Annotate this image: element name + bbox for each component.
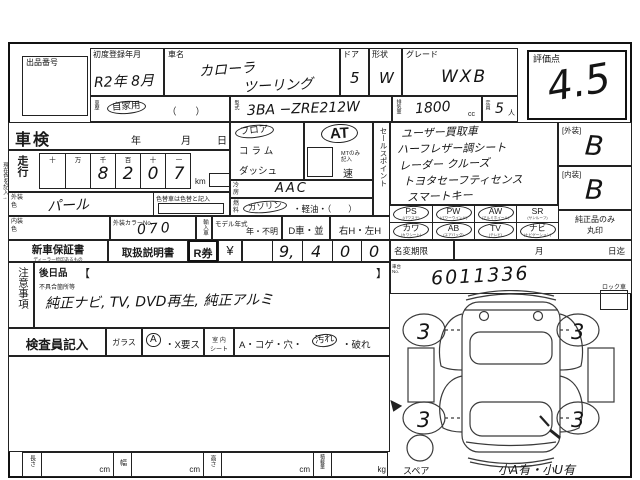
sales-point-label: セールスポイント bbox=[378, 127, 389, 187]
glass-label-box: ガラス bbox=[106, 328, 142, 356]
sales-point-item: スマートキー bbox=[407, 187, 473, 205]
dimensions-strip: 長さ cm 幅 cm 高さ cm 積載量 kg bbox=[22, 452, 388, 477]
month-label: 月 bbox=[535, 245, 544, 257]
name-change-box: 名変期限 bbox=[390, 240, 454, 260]
notes-label: 注意事項 bbox=[16, 267, 31, 309]
recycle-amount-digit: 0 bbox=[369, 242, 379, 261]
equipment-cell-navi: ナビ (ナビゲーション) bbox=[516, 222, 558, 240]
name-change-label: 名変期限 bbox=[394, 245, 453, 257]
sales-point-item: レーダー クルーズ bbox=[399, 154, 490, 173]
auction-sheet: 現在色を記入→ 出品番号 初度登録年月 R2年 8月 車名 カローラ ツーリング… bbox=[0, 0, 640, 480]
recycle-ticket-label: R券 bbox=[190, 245, 216, 261]
front-glass bbox=[470, 332, 552, 364]
exterior-color-box: 外装色 パール 色替車は色替と記入 bbox=[8, 192, 230, 216]
d-car-box: D車・並 bbox=[282, 216, 330, 240]
grade-box: グレード WXB bbox=[402, 48, 518, 96]
spare-label: スペア bbox=[403, 466, 429, 476]
door-value: 5 bbox=[350, 69, 360, 87]
bracket-close: 】 bbox=[376, 265, 387, 281]
model-year-value: 年・不明 bbox=[246, 226, 278, 237]
shift-column: コラム bbox=[239, 143, 276, 157]
fuel-gasoline: ガソリン bbox=[243, 199, 288, 215]
seat-label-box: 室 内 シート bbox=[204, 328, 234, 356]
damage-mark-right bbox=[550, 430, 560, 438]
handle-label: 右H・左H bbox=[331, 223, 389, 237]
score-value: 4.5 bbox=[543, 55, 614, 111]
model-code-box: 型式 3BA −ZRE212W bbox=[230, 96, 392, 122]
height-label: 高さ bbox=[208, 455, 217, 467]
recycle-amount-box: 9, 4 0 0 bbox=[242, 240, 390, 262]
capacity-unit: 人 bbox=[508, 108, 515, 118]
sales-point-item: ハーフレザー調シート bbox=[397, 139, 507, 157]
shift-position-box: フロア コラム ダッシュ bbox=[230, 122, 304, 180]
inspector-label-box: 検査員記入 bbox=[8, 328, 106, 356]
equipment-cell-aw: AW (アルミホイール) bbox=[474, 205, 516, 222]
auction-number-box: 出品番号 bbox=[22, 56, 88, 116]
trunk-line bbox=[466, 442, 556, 446]
mileage-digit: 8 bbox=[91, 164, 115, 184]
height-unit: cm bbox=[299, 465, 310, 474]
ac-box: 冷房 AAC bbox=[230, 180, 373, 198]
damage-mark-right bbox=[540, 416, 549, 426]
first-registration-label: 初度登録年月 bbox=[91, 49, 163, 62]
mt-note-2: 記入 bbox=[341, 155, 352, 163]
tire-mark: 3 bbox=[417, 320, 430, 344]
genuine-note-1: 純正品のみ bbox=[559, 214, 631, 225]
grade-value: WXB bbox=[441, 67, 487, 87]
yen-label: ¥ bbox=[219, 243, 241, 258]
capacity-label: 定員 bbox=[484, 100, 490, 110]
sales-point-item: ユーザー買取車 bbox=[401, 123, 478, 142]
defect-value: 純正ナビ, TV, DVD再生, 純正アルミ bbox=[45, 289, 274, 313]
damage-mark-left bbox=[392, 402, 400, 410]
interior-color-label: 内装色 bbox=[11, 219, 25, 234]
glass-label: ガラス bbox=[107, 337, 141, 348]
door-box: ドア 5 bbox=[340, 48, 369, 96]
mileage-col: 十 bbox=[40, 154, 65, 164]
tire-mark: 3 bbox=[571, 408, 584, 432]
mileage-digit: 7 bbox=[166, 164, 192, 184]
front-bumper-line bbox=[468, 291, 554, 297]
load-label: 積載量 bbox=[319, 454, 326, 469]
equipment-cell-kawa: カワ (カワシート) bbox=[390, 222, 432, 240]
day-until-label: 日迄 bbox=[608, 245, 625, 257]
sales-point-label-box: セールスポイント bbox=[373, 122, 390, 216]
mileage-col: 万 bbox=[66, 154, 90, 164]
inspector-label: 検査員記入 bbox=[9, 334, 105, 353]
car-damage-diagram: 3 3 3 3 スペア 小A有・小U有 bbox=[390, 290, 632, 478]
spare-tire-circle bbox=[407, 435, 433, 461]
equipment-code: SR bbox=[517, 207, 558, 216]
equipment-cell-sr: SR (サンルーフ) bbox=[516, 205, 558, 222]
glass-value-box: A ・X要ス bbox=[142, 328, 204, 356]
chassis-label-2: No. bbox=[392, 269, 401, 274]
history-box: 車歴 自家用 （ ） bbox=[90, 96, 230, 122]
exterior-grade-box: [外装] B bbox=[558, 122, 632, 166]
fuel-label: 燃料 bbox=[233, 201, 241, 215]
color-no-box: 外装カラーNo. 070 bbox=[110, 216, 196, 240]
sales-points-box: ユーザー買取車 ハーフレザー調シート レーダー クルーズ トヨタセーフティセンス… bbox=[390, 122, 558, 205]
displacement-label: 排気量 bbox=[395, 99, 401, 114]
shape-label: 形状 bbox=[370, 49, 401, 62]
ac-label: 冷房 bbox=[233, 183, 241, 197]
history-value: 自家用 bbox=[107, 100, 146, 116]
equipment-cell-ps: PS (パワステ) bbox=[390, 205, 432, 222]
name-change-date-box: 月 日迄 bbox=[454, 240, 632, 260]
mileage-label: 走行 bbox=[14, 155, 30, 177]
equipment-cell-tv: TV (テレビ) bbox=[474, 222, 516, 240]
car-name-line2: ツーリング bbox=[243, 73, 314, 97]
manual-box: 取扱説明書 bbox=[108, 240, 188, 262]
tire-mark: 3 bbox=[571, 320, 584, 344]
shaken-day: 日 bbox=[217, 132, 227, 147]
exterior-color-label: 外装色 bbox=[11, 195, 25, 210]
color-change-input bbox=[158, 203, 224, 214]
wiper-dot bbox=[480, 312, 489, 321]
fuel-box: 燃料 ガソリン ・軽油・（ ） bbox=[230, 198, 373, 216]
displacement-box: 排気量 1800 cc bbox=[392, 96, 482, 122]
recycle-amount-digit: 0 bbox=[340, 242, 350, 261]
load-unit: kg bbox=[378, 465, 386, 474]
mileage-digit: 0 bbox=[141, 164, 165, 184]
transmission-box: AT MTのみ 記入 速 bbox=[304, 122, 373, 180]
seat-post: ・破れ bbox=[342, 337, 371, 351]
speed-label: 速 bbox=[343, 165, 353, 180]
fuel-rest: ・軽油・（ ） bbox=[293, 203, 357, 215]
d-car-label: D車・並 bbox=[283, 223, 329, 237]
model-year-box: モデル年式 年・不明 bbox=[212, 216, 282, 240]
rear-glass bbox=[470, 402, 552, 436]
bracket-open: 【 bbox=[79, 265, 90, 281]
tire-mark: 3 bbox=[417, 408, 430, 432]
genuine-parts-box: 純正品のみ 丸印 bbox=[558, 210, 632, 240]
car-body-outline bbox=[462, 302, 560, 452]
interior-color-box: 内装色 bbox=[8, 216, 110, 240]
warranty-label: 新車保証書 bbox=[9, 242, 107, 257]
shaken-box: 車検 年 月 日 bbox=[8, 122, 230, 150]
diagram-bottom-note: 小A有・小U有 bbox=[498, 463, 577, 477]
later-items-label: 後日品 bbox=[39, 265, 68, 279]
displacement-unit: cc bbox=[468, 111, 475, 118]
exterior-color-value: パール bbox=[47, 194, 90, 216]
wiper-dot bbox=[534, 312, 543, 321]
defect-label: 不具合箇所等 bbox=[39, 282, 75, 291]
notes-box: 後日品 【 】 不具合箇所等 純正ナビ, TV, DVD再生, 純正アルミ bbox=[34, 262, 390, 328]
history-label: 車歴 bbox=[93, 100, 99, 110]
grade-label: グレード bbox=[403, 49, 517, 62]
interior-grade-box: [内装] B bbox=[558, 166, 632, 210]
interior-grade-value: B bbox=[584, 175, 604, 207]
recycle-ticket-box: R券 bbox=[188, 240, 218, 262]
history-paren: （ ） bbox=[167, 104, 205, 118]
warranty-box: 新車保証書 ディーラー捺印あるもの bbox=[8, 240, 108, 262]
km-label: km bbox=[195, 177, 206, 186]
at-value: AT bbox=[321, 123, 359, 144]
sill-right bbox=[588, 348, 614, 402]
auction-number-label: 出品番号 bbox=[23, 57, 87, 70]
model-code-label: 型式 bbox=[233, 100, 239, 110]
seat-value-box: A・コゲ・穴・ 汚れ ・破れ bbox=[234, 328, 390, 356]
mileage-box: 走行 十 万 千8 百2 十0 一7 km bbox=[8, 150, 230, 192]
seat-label-2: シート bbox=[205, 344, 233, 353]
seat-label-1: 室 内 bbox=[205, 335, 233, 344]
genuine-note-2: 丸印 bbox=[559, 225, 631, 236]
capacity-box: 定員 5 人 bbox=[482, 96, 518, 122]
length-unit: cm bbox=[99, 465, 110, 474]
length-label: 長さ bbox=[28, 455, 37, 467]
car-name-box: 車名 カローラ ツーリング bbox=[164, 48, 340, 96]
mileage-col: 一 bbox=[166, 154, 192, 164]
width-unit: cm bbox=[189, 465, 200, 474]
shaken-month: 月 bbox=[181, 132, 191, 147]
recycle-amount-digit: 9, bbox=[279, 242, 294, 261]
yen-box: ¥ bbox=[218, 240, 242, 262]
first-registration-value: R2年 8月 bbox=[94, 70, 155, 92]
first-registration-box: 初度登録年月 R2年 8月 bbox=[90, 48, 164, 96]
shape-value: W bbox=[379, 69, 394, 87]
shape-box: 形状 W bbox=[369, 48, 402, 96]
shift-floor: フロア bbox=[234, 123, 274, 140]
mileage-col: 千 bbox=[91, 154, 115, 164]
gear-count-box bbox=[307, 147, 333, 177]
shaken-year: 年 bbox=[131, 132, 141, 147]
exterior-grade-value: B bbox=[584, 130, 605, 162]
displacement-value: 1800 bbox=[414, 99, 451, 117]
ac-value: AAC bbox=[275, 181, 308, 196]
model-code-value: 3BA −ZRE212W bbox=[247, 99, 360, 119]
color-no-value: 070 bbox=[136, 220, 173, 238]
equipment-grid: PS (パワステ) PW (パワーウインド) AW (アルミホイール) SR (… bbox=[390, 205, 558, 240]
sill-left bbox=[408, 348, 434, 402]
seat-dirty: 汚れ bbox=[311, 333, 337, 348]
shift-dash: ダッシュ bbox=[239, 163, 277, 177]
glass-grade: A bbox=[146, 333, 161, 347]
front-bumper-line bbox=[466, 294, 556, 300]
inspection-notes-area bbox=[8, 356, 390, 452]
mileage-col: 百 bbox=[116, 154, 140, 164]
import-label: 輸入車 bbox=[201, 219, 209, 236]
manual-label: 取扱説明書 bbox=[109, 245, 187, 260]
equipment-cell-ab: AB (エアバッグ) bbox=[432, 222, 474, 240]
width-label: 幅 bbox=[118, 459, 128, 466]
mileage-col: 十 bbox=[141, 154, 165, 164]
glass-rest: ・X要ス bbox=[165, 337, 200, 351]
handle-box: 右H・左H bbox=[330, 216, 390, 240]
score-box: 評価点 4.5 bbox=[527, 50, 627, 120]
notes-label-box: 注意事項 bbox=[8, 262, 34, 328]
door-label: ドア bbox=[341, 49, 368, 62]
mileage-digit: 2 bbox=[116, 164, 140, 184]
seat-pre: A・コゲ・穴・ bbox=[239, 337, 302, 351]
chassis-value: 6011336 bbox=[430, 262, 530, 289]
capacity-value: 5 bbox=[495, 101, 504, 117]
equipment-sub: (サンルーフ) bbox=[519, 216, 556, 220]
recycle-amount-digit: 4 bbox=[311, 242, 321, 261]
shaken-label: 車検 bbox=[15, 126, 51, 150]
equipment-cell-pw: PW (パワーウインド) bbox=[432, 205, 474, 222]
import-box: 輸入車 bbox=[196, 216, 212, 240]
